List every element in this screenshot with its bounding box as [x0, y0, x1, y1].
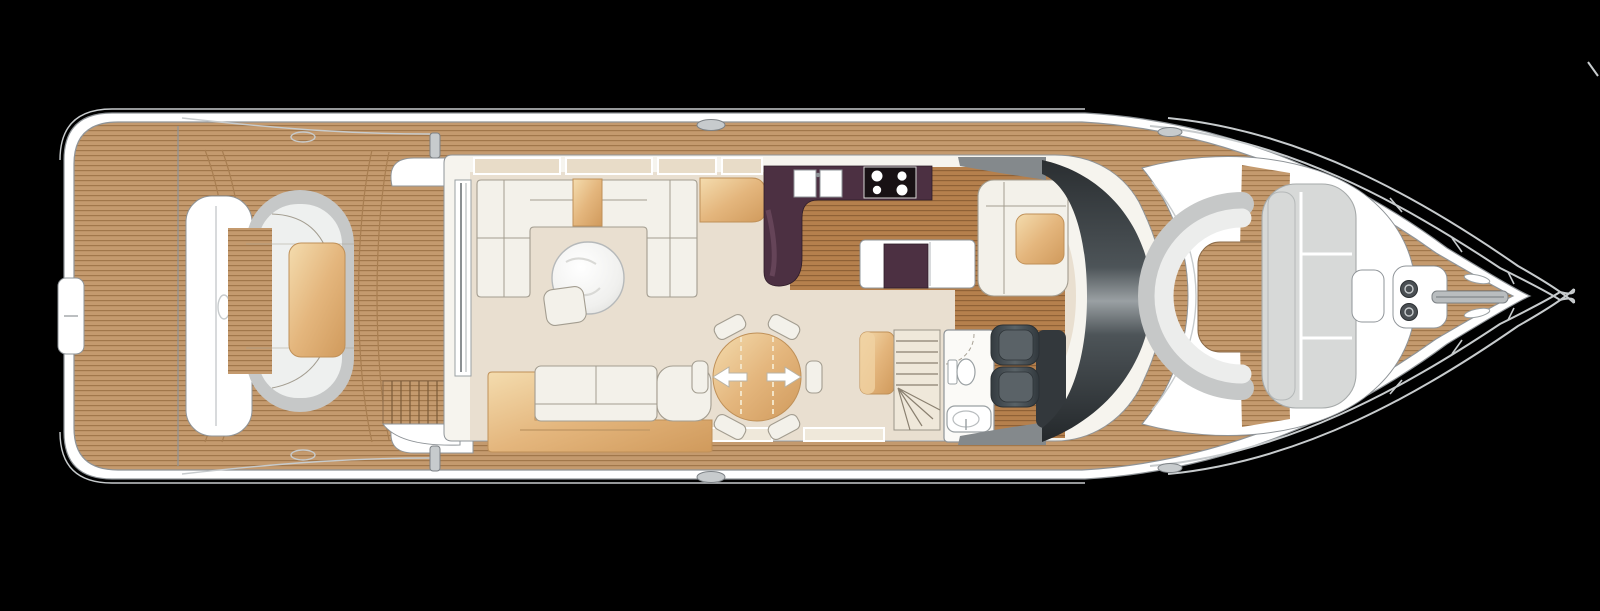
cockpit-table [289, 243, 345, 357]
salon-aft-sofa-group [488, 366, 712, 452]
helm-table [1016, 214, 1064, 264]
sideboard-starboard [700, 178, 766, 222]
sink [794, 170, 816, 197]
foredeck-sun-pad [1262, 184, 1356, 408]
foredeck-step [1352, 270, 1384, 322]
aft-cockpit [186, 190, 354, 436]
ottoman [543, 285, 588, 326]
fairlead [697, 120, 725, 131]
cleat [1158, 128, 1182, 137]
hob [864, 167, 916, 198]
yacht-floor-plan [0, 0, 1600, 611]
cleat [430, 446, 440, 471]
fairlead [697, 472, 725, 483]
cleat [430, 133, 440, 158]
galley-island [860, 240, 975, 288]
washbasin [947, 406, 991, 432]
staircase-down [894, 330, 940, 430]
sliding-door [455, 180, 471, 376]
cleat [1158, 464, 1182, 473]
day-head [944, 330, 994, 442]
sofa-console [573, 179, 602, 226]
floor-plan-stage [0, 0, 1600, 611]
toilet [948, 359, 975, 385]
